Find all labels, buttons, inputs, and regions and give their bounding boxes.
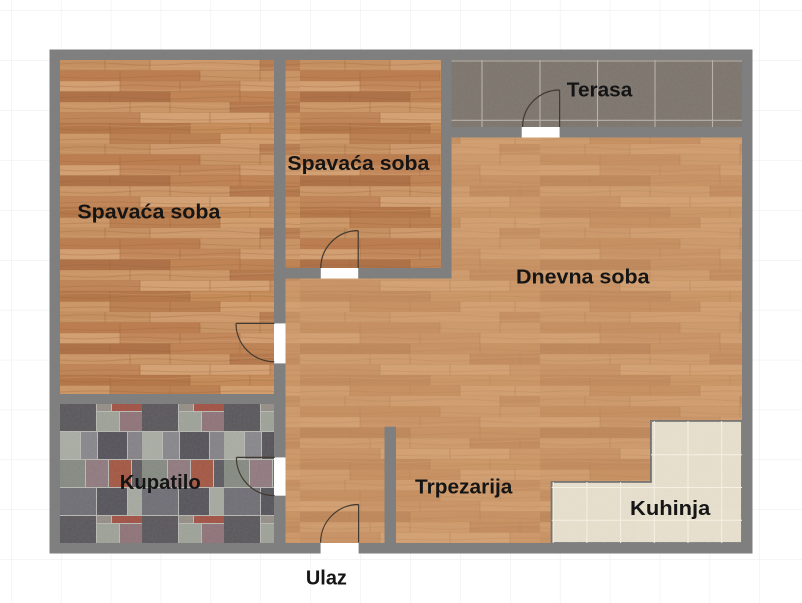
svg-text:Trpezarija: Trpezarija [415, 477, 513, 499]
svg-text:Spavaća soba: Spavaća soba [77, 201, 221, 223]
svg-text:Dnevna soba: Dnevna soba [516, 267, 650, 289]
svg-text:Kupatilo: Kupatilo [120, 472, 201, 494]
svg-text:Terasa: Terasa [567, 79, 633, 101]
svg-text:Spavaća soba: Spavaća soba [287, 153, 430, 175]
svg-text:Ulaz: Ulaz [306, 568, 347, 590]
svg-text:Kuhinja: Kuhinja [630, 498, 711, 520]
